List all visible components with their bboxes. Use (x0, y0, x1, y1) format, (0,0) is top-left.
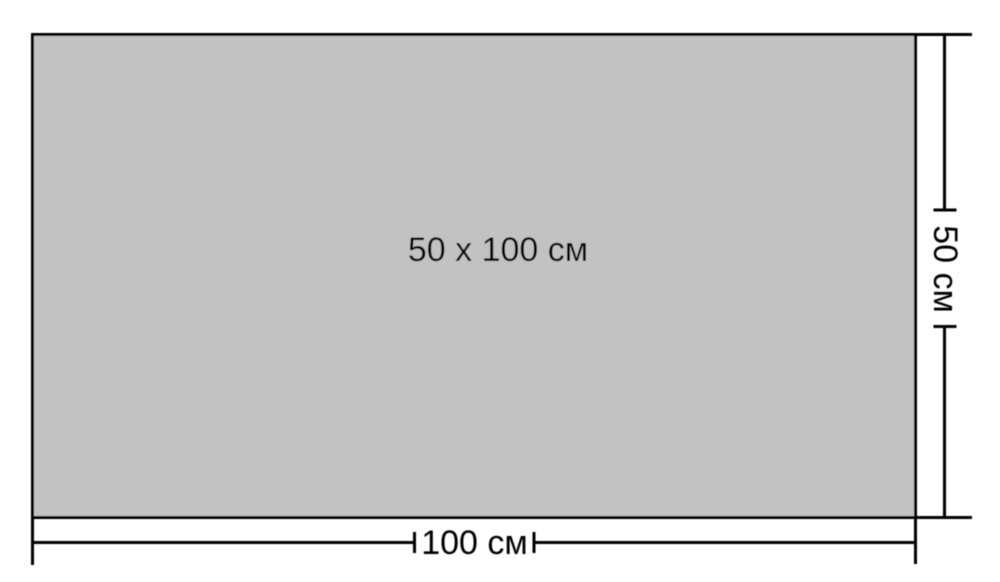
svg-text:50 см: 50 см (926, 225, 964, 313)
svg-text:100 см: 100 см (421, 524, 528, 562)
svg-text:50 x 100 см: 50 x 100 см (408, 231, 588, 269)
